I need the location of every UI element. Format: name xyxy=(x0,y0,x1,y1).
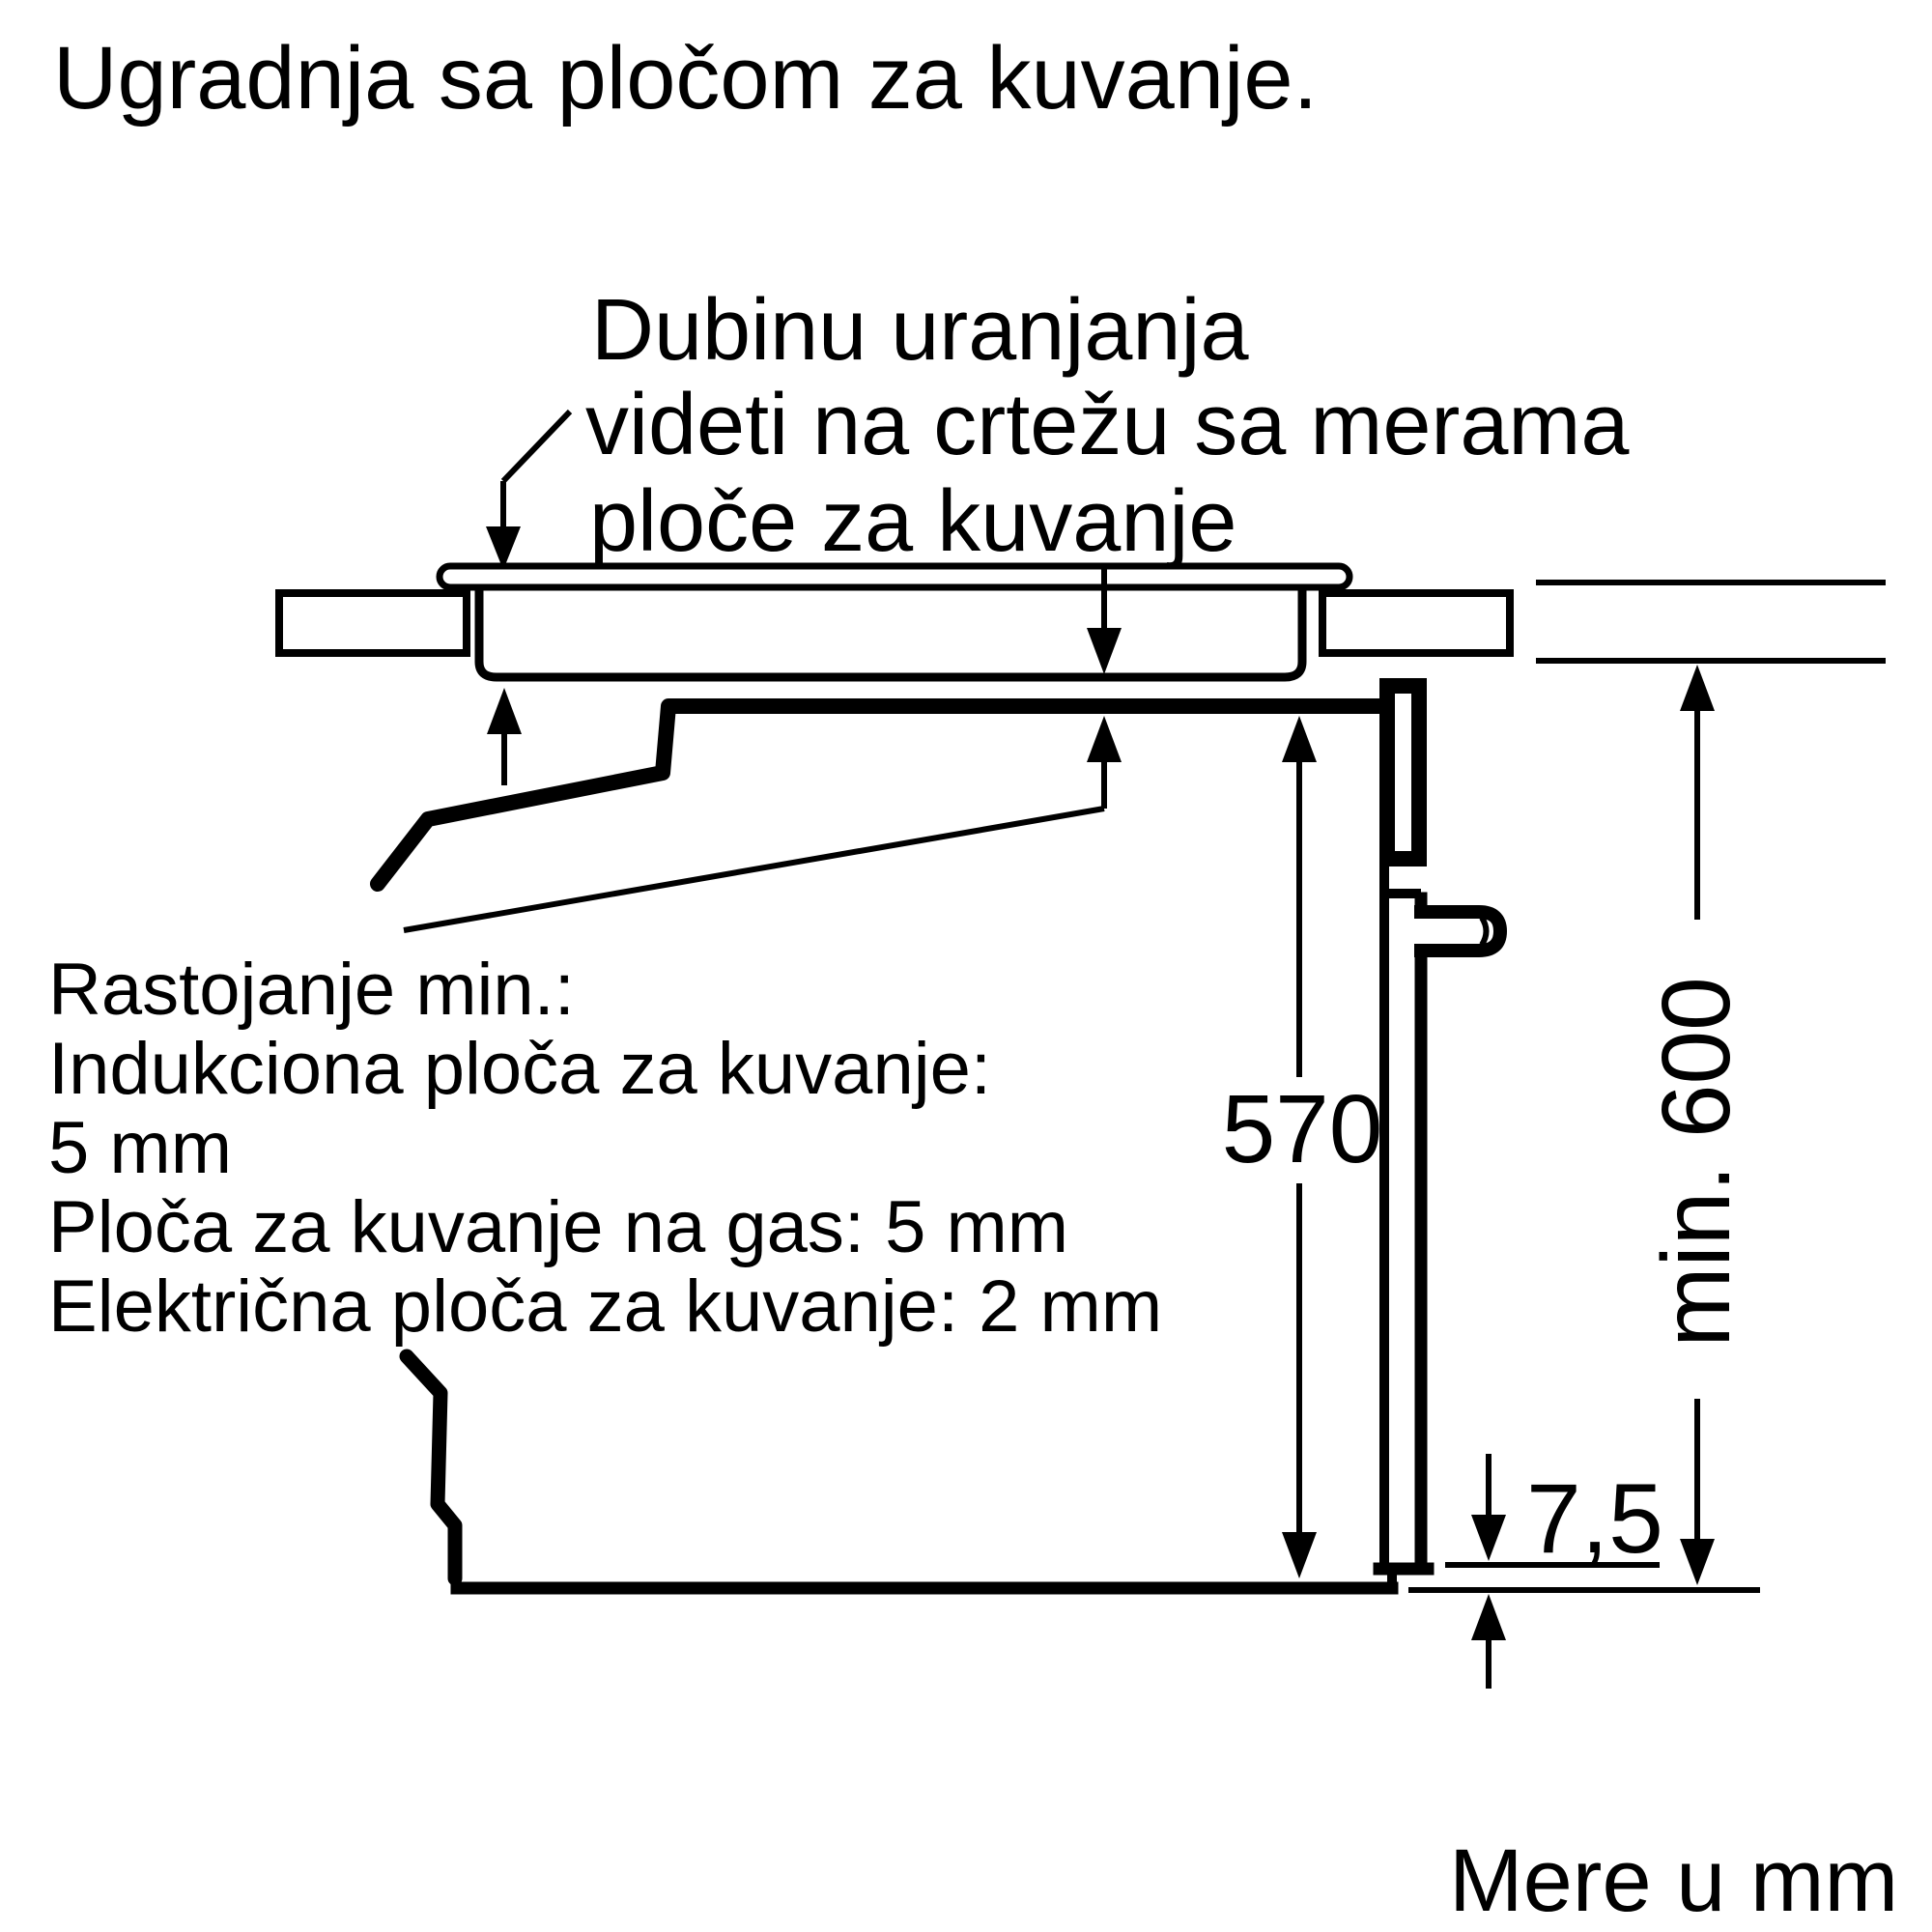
notes-minimum-distance: Rastojanje min.: Indukciona ploča za kuv… xyxy=(48,949,1162,1348)
page-title: Ugradnja sa pločom za kuvanje. xyxy=(53,29,1318,128)
dim-570-arrowhead-up-icon xyxy=(1282,716,1317,762)
clearance-right-arrowhead-up-icon xyxy=(1087,716,1122,762)
annotation-line-2: videti na crtežu sa merama xyxy=(585,377,1630,473)
note-line-2: Indukciona ploča za kuvanje: xyxy=(48,1028,991,1110)
oven-control-panel xyxy=(1387,686,1419,859)
clearance-leader-line xyxy=(404,809,1104,930)
note-line-5: Električna ploča za kuvanje: 2 mm xyxy=(48,1265,1162,1348)
niche-arrowhead-down-icon xyxy=(1680,1539,1715,1585)
note-line-4: Ploča za kuvanje na gas: 5 mm xyxy=(48,1186,1068,1268)
annotation-immersion-depth: Dubinu uranjanja videti na crtežu sa mer… xyxy=(486,282,1630,570)
clearance-left-arrowhead-up-icon xyxy=(487,688,522,734)
annotation-leader-line xyxy=(503,412,570,481)
oven-left-break-line xyxy=(407,1356,455,1578)
niche-height-label: min. 600 xyxy=(1642,977,1750,1348)
niche-arrowhead-up-icon xyxy=(1680,665,1715,711)
dimension-door-gap: 7,5 xyxy=(1408,1454,1760,1689)
units-note: Mere u mm xyxy=(1449,1832,1898,1930)
dim-570-label: 570 xyxy=(1222,1075,1383,1183)
oven-top-panel xyxy=(378,706,1379,884)
manual-page: Ugradnja sa pločom za kuvanje. Dubinu ur… xyxy=(0,0,1932,1932)
hob-top-plate xyxy=(440,566,1350,587)
note-line-3: 5 mm xyxy=(48,1107,232,1189)
dimension-570: 570 xyxy=(1222,716,1383,1578)
installation-diagram-svg: Ugradnja sa pločom za kuvanje. Dubinu ur… xyxy=(0,0,1932,1932)
note-line-1: Rastojanje min.: xyxy=(48,949,575,1031)
dim-570-arrowhead-down-icon xyxy=(1282,1532,1317,1578)
clearance-arrow-left xyxy=(487,688,522,785)
door-gap-arrowhead-up-icon xyxy=(1471,1594,1506,1640)
hob-body xyxy=(479,580,1302,677)
annotation-line-1: Dubinu uranjanja xyxy=(591,282,1249,379)
clearance-arrow-right xyxy=(404,716,1122,930)
door-gap-arrowhead-down-icon xyxy=(1471,1515,1506,1561)
worktop-left-section xyxy=(279,593,467,653)
door-gap-label: 7,5 xyxy=(1526,1463,1663,1574)
worktop-right-section xyxy=(1322,593,1510,653)
dimension-niche-height: min. 600 xyxy=(1642,665,1750,1585)
annotation-line-3: ploče za kuvanje xyxy=(589,473,1236,570)
